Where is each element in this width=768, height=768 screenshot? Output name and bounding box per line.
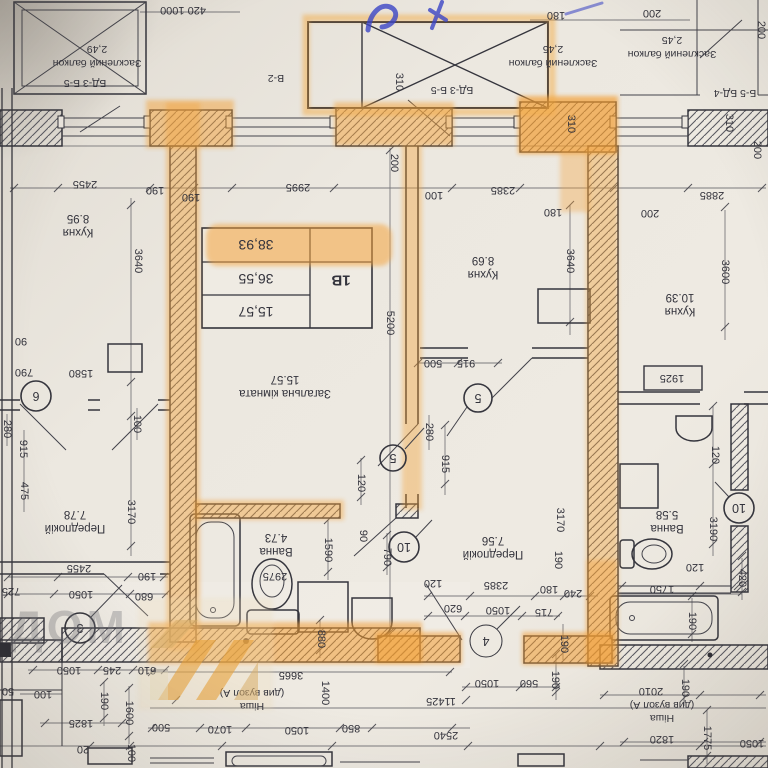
photo-vignette (0, 0, 768, 768)
floor-plan-photo: 6 5 5 10 10 3 4 420 1000 180 200 200 310… (0, 0, 768, 768)
floor-plan: 6 5 5 10 10 3 4 420 1000 180 200 200 310… (0, 0, 768, 768)
